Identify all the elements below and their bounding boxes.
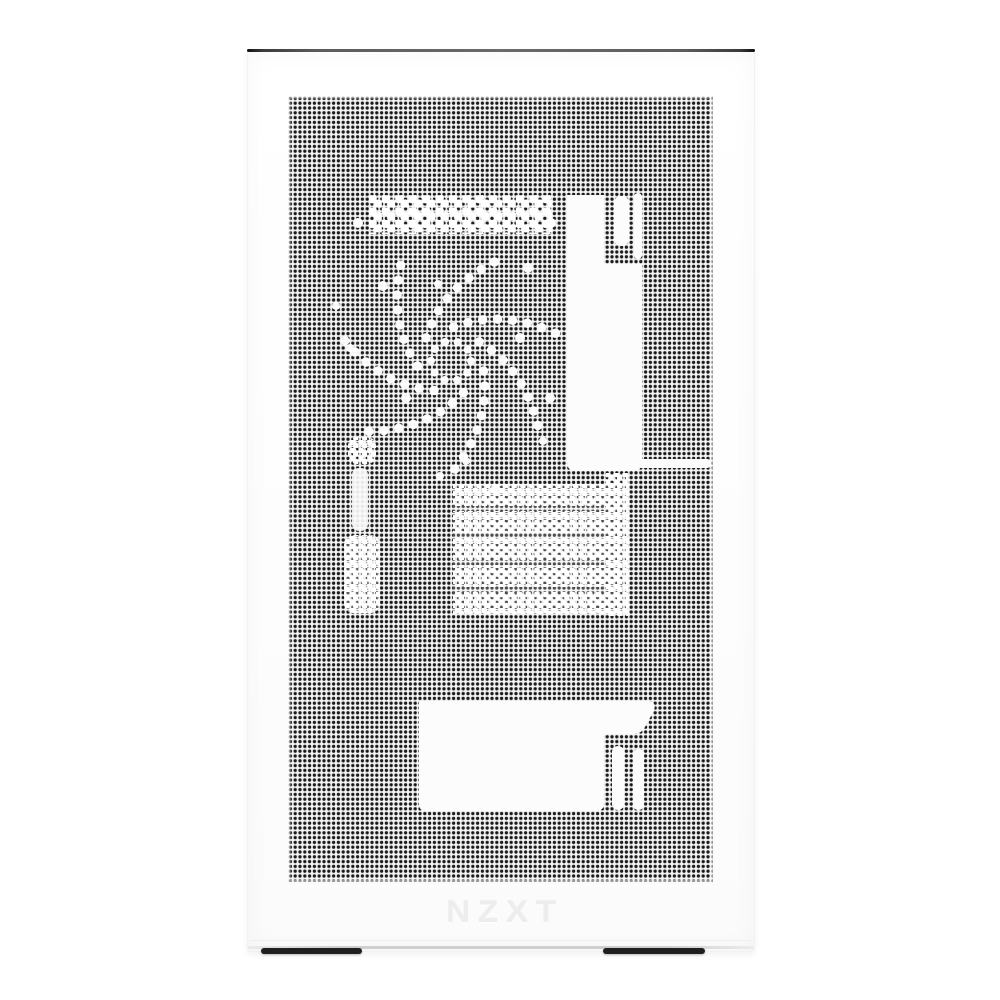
top-vent-band [353, 195, 556, 234]
gpu-psu-silhouette [419, 701, 655, 811]
pc-case: NZXT [247, 50, 755, 952]
product-photo: NZXT [0, 0, 1000, 1000]
case-bottom-seam [250, 940, 752, 941]
case-foot-left [261, 948, 362, 954]
ram-silhouette [453, 473, 629, 616]
mesh-side-panel [288, 96, 713, 882]
brand-logo: NZXT [228, 894, 774, 930]
case-top-edge [247, 49, 755, 52]
case-foot-right [603, 948, 705, 954]
